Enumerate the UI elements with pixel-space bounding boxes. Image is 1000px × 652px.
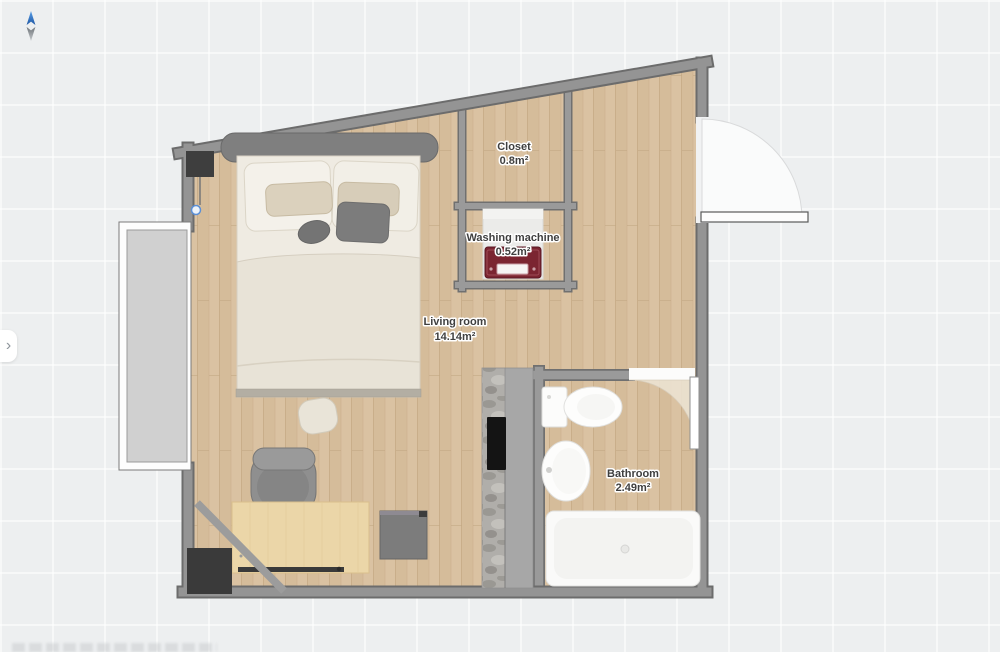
- living-room-area: 14.14m²: [435, 331, 476, 343]
- balcony-window[interactable]: [119, 222, 191, 470]
- washing-machine-label: Washing machine: [466, 232, 559, 244]
- entrance-door[interactable]: [696, 117, 808, 223]
- double-bed[interactable]: [221, 133, 438, 436]
- floor-plan: Living room 14.14m² Closet 0.8m² Washing…: [0, 0, 1000, 652]
- closet-label: Closet: [497, 141, 531, 153]
- kitchen-counter[interactable]: [482, 368, 533, 588]
- bathroom-label: Bathroom: [607, 468, 659, 480]
- closet-area: 0.8m²: [500, 155, 529, 167]
- washing-machine-area: 0.52m²: [496, 246, 531, 258]
- floor-plan-canvas: Living room 14.14m² Closet 0.8m² Washing…: [0, 0, 1000, 652]
- living-room-label: Living room: [424, 316, 487, 328]
- bathroom-area: 2.49m²: [616, 482, 651, 494]
- chevron-right-icon: ›: [6, 338, 11, 354]
- bathroom-sink[interactable]: [542, 441, 590, 501]
- watermark: [12, 643, 217, 652]
- toilet[interactable]: [542, 387, 622, 427]
- panel-expand-tab[interactable]: ›: [0, 330, 17, 362]
- corner-cabinet[interactable]: [187, 548, 232, 594]
- bathtub[interactable]: [546, 511, 700, 586]
- monitor-bar[interactable]: [238, 567, 344, 572]
- side-cabinet[interactable]: [380, 511, 427, 559]
- washing-machine[interactable]: [483, 209, 543, 279]
- cooktop[interactable]: [487, 417, 506, 470]
